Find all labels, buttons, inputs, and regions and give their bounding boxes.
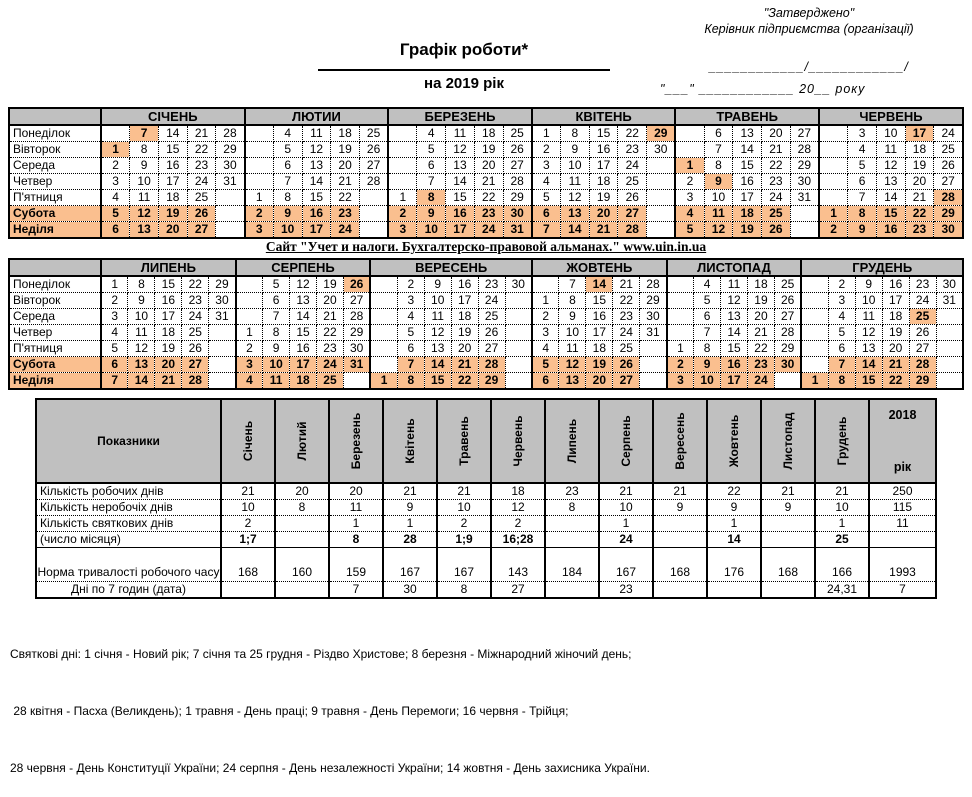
empty-day-cell	[667, 276, 694, 293]
day-cell: 12	[130, 206, 159, 222]
day-cell: 20	[905, 174, 934, 190]
day-cell: 2	[101, 158, 130, 174]
day-cell: 10	[855, 293, 882, 309]
day-cell: 25	[478, 309, 505, 325]
day-cell: 18	[586, 341, 613, 357]
day-cell: 21	[905, 190, 934, 206]
empty-day-cell	[801, 309, 828, 325]
day-cell: 28	[640, 276, 667, 293]
calendar-table-jul-dec: ЛИПЕНЬСЕРПЕНЬВЕРЕСЕНЬЖОВТЕНЬЛИСТОПАДГРУД…	[8, 258, 964, 390]
day-cell: 14	[876, 190, 905, 206]
day-cell: 26	[934, 158, 963, 174]
day-cell: 31	[216, 174, 245, 190]
day-cell: 1	[388, 190, 417, 206]
weekday-label: Субота	[9, 357, 101, 373]
day-cell: 1	[532, 125, 561, 142]
empty-day-cell	[667, 293, 694, 309]
vertical-month-header: Травень	[457, 416, 471, 465]
empty-day-cell	[359, 222, 388, 239]
day-cell: 27	[359, 158, 388, 174]
day-cell: 26	[343, 276, 370, 293]
empty-day-cell	[209, 341, 236, 357]
month-header: ЛИПЕНЬ	[101, 259, 236, 276]
day-cell: 10	[417, 222, 446, 239]
empty-day-cell	[647, 206, 676, 222]
day-cell: 6	[828, 341, 855, 357]
empty-day-cell	[801, 276, 828, 293]
day-cell: 19	[317, 276, 344, 293]
day-cell: 5	[263, 276, 290, 293]
day-cell: 5	[397, 325, 424, 341]
day-cell: 13	[721, 309, 748, 325]
day-cell: 2	[532, 309, 559, 325]
day-cell: 22	[331, 190, 360, 206]
day-cell: 22	[748, 341, 775, 357]
day-cell: 10	[561, 158, 590, 174]
day-cell: 28	[182, 373, 209, 390]
empty-day-cell	[936, 357, 963, 373]
day-cell: 15	[855, 373, 882, 390]
day-cell: 4	[417, 125, 446, 142]
indicator-label: Кількість неробочіх днів	[36, 500, 221, 516]
day-cell: 29	[478, 373, 505, 390]
indicator-value: 115	[869, 500, 936, 516]
empty-day-cell	[245, 158, 274, 174]
day-cell: 19	[882, 325, 909, 341]
day-cell: 7	[559, 276, 586, 293]
indicator-value: 1	[329, 516, 383, 532]
day-cell: 11	[130, 190, 159, 206]
day-cell: 21	[474, 174, 503, 190]
day-cell: 11	[424, 309, 451, 325]
empty-value-cell	[545, 516, 599, 532]
day-cell: 9	[561, 142, 590, 158]
vertical-month-header: Жовтень	[727, 415, 741, 467]
day-cell: 8	[130, 142, 159, 158]
indicator-value: 11	[329, 500, 383, 516]
vertical-month-header: Квітень	[403, 418, 417, 463]
day-cell: 1	[532, 293, 559, 309]
day-cell: 16	[302, 206, 331, 222]
day-cell: 18	[451, 309, 478, 325]
day-cell: 11	[302, 125, 331, 142]
day-cell: 11	[721, 276, 748, 293]
day-cell: 17	[451, 293, 478, 309]
indicator-value: 21	[815, 483, 869, 500]
day-cell: 2	[828, 276, 855, 293]
empty-day-cell	[667, 325, 694, 341]
vertical-month-header: Січень	[241, 421, 255, 461]
day-cell: 10	[694, 373, 721, 390]
day-cell: 24	[613, 325, 640, 341]
day-cell: 4	[273, 125, 302, 142]
indicator-value: 18	[491, 483, 545, 500]
day-cell: 5	[675, 222, 704, 239]
day-cell: 16	[155, 293, 182, 309]
indicator-value: 14	[707, 532, 761, 548]
day-cell: 10	[263, 357, 290, 373]
day-cell: 26	[187, 206, 216, 222]
day-cell: 28	[934, 190, 963, 206]
day-cell: 23	[905, 222, 934, 239]
empty-day-cell	[819, 174, 848, 190]
day-cell: 26	[503, 142, 532, 158]
day-cell: 1	[819, 206, 848, 222]
indicator-label: Дні по 7 годин (дата)	[36, 582, 221, 599]
weekday-label: Понеділок	[9, 276, 101, 293]
day-cell: 20	[317, 293, 344, 309]
indicator-value: 143	[491, 548, 545, 582]
day-cell: 1	[101, 276, 128, 293]
day-cell: 28	[909, 357, 936, 373]
empty-value-cell	[275, 532, 329, 548]
indicator-value: 167	[383, 548, 437, 582]
empty-day-cell	[647, 158, 676, 174]
indicator-value: 28	[383, 532, 437, 548]
day-cell: 2	[397, 276, 424, 293]
day-cell: 30	[503, 206, 532, 222]
empty-day-cell	[505, 341, 532, 357]
calendar-grid: ЛИПЕНЬСЕРПЕНЬВЕРЕСЕНЬЖОВТЕНЬЛИСТОПАДГРУД…	[8, 258, 964, 390]
day-cell: 7	[417, 174, 446, 190]
day-cell: 21	[613, 276, 640, 293]
day-cell: 20	[331, 158, 360, 174]
empty-day-cell	[640, 341, 667, 357]
day-cell: 29	[909, 373, 936, 390]
day-cell: 28	[359, 174, 388, 190]
day-cell: 9	[694, 357, 721, 373]
day-cell: 5	[417, 142, 446, 158]
day-cell: 17	[905, 125, 934, 142]
day-cell: 13	[130, 222, 159, 239]
day-cell: 23	[748, 357, 775, 373]
day-cell: 4	[236, 373, 263, 390]
day-cell: 1	[101, 142, 130, 158]
day-cell: 28	[618, 222, 647, 239]
day-cell: 13	[424, 341, 451, 357]
indicator-value: 27	[491, 582, 545, 599]
approval-role: Керівник підприємства (організації)	[648, 22, 970, 36]
empty-day-cell	[388, 142, 417, 158]
day-cell: 22	[182, 276, 209, 293]
indicator-label: (число місяця)	[36, 532, 221, 548]
day-cell: 19	[155, 341, 182, 357]
day-cell: 28	[343, 309, 370, 325]
indicators-header: Показники	[36, 399, 221, 483]
day-cell: 8	[263, 325, 290, 341]
indicator-value: 10	[815, 500, 869, 516]
weekday-label: Понеділок	[9, 125, 101, 142]
day-cell: 24	[331, 222, 360, 239]
day-cell: 30	[505, 276, 532, 293]
day-cell: 8	[559, 293, 586, 309]
day-cell: 7	[704, 142, 733, 158]
month-header: ГРУДЕНЬ	[801, 259, 963, 276]
day-cell: 27	[343, 293, 370, 309]
day-cell: 16	[158, 158, 187, 174]
day-cell: 19	[589, 190, 618, 206]
empty-day-cell	[216, 206, 245, 222]
day-cell: 11	[704, 206, 733, 222]
empty-day-cell	[236, 276, 263, 293]
day-cell: 14	[586, 276, 613, 293]
day-cell: 3	[245, 222, 274, 239]
day-cell: 18	[748, 276, 775, 293]
day-cell: 15	[155, 276, 182, 293]
day-cell: 20	[155, 357, 182, 373]
indicator-value: 2	[221, 516, 275, 532]
day-cell: 2	[388, 206, 417, 222]
empty-day-cell	[640, 357, 667, 373]
indicator-value: 21	[599, 483, 653, 500]
day-cell: 2	[236, 341, 263, 357]
day-cell: 23	[478, 276, 505, 293]
day-cell: 15	[586, 293, 613, 309]
empty-day-cell	[936, 325, 963, 341]
page-title: Графік роботи*	[318, 40, 610, 60]
day-cell: 4	[532, 174, 561, 190]
day-cell: 1	[245, 190, 274, 206]
indicator-value: 2	[437, 516, 491, 532]
month-header: ТРАВЕНЬ	[675, 108, 819, 125]
day-cell: 27	[618, 206, 647, 222]
day-cell: 22	[618, 125, 647, 142]
day-cell: 9	[263, 341, 290, 357]
day-cell: 10	[128, 309, 155, 325]
indicator-value: 10	[599, 500, 653, 516]
empty-day-cell	[790, 206, 819, 222]
day-cell: 23	[909, 276, 936, 293]
month-header: ЛИСТОПАД	[667, 259, 802, 276]
day-cell: 31	[209, 309, 236, 325]
day-cell: 17	[733, 190, 762, 206]
day-cell: 28	[216, 125, 245, 142]
holiday-note-line: 28 червня - День Конституції України; 24…	[10, 759, 960, 778]
empty-day-cell	[505, 325, 532, 341]
empty-day-cell	[216, 190, 245, 206]
day-cell: 10	[273, 222, 302, 239]
day-cell: 26	[478, 325, 505, 341]
weekday-label: Четвер	[9, 325, 101, 341]
day-cell: 9	[855, 276, 882, 293]
day-cell: 17	[158, 174, 187, 190]
empty-day-cell	[532, 276, 559, 293]
day-cell: 16	[451, 276, 478, 293]
day-cell: 31	[343, 357, 370, 373]
month-column-header: Лютий	[275, 399, 329, 483]
empty-day-cell	[819, 190, 848, 206]
day-cell: 9	[848, 222, 877, 239]
vertical-month-header: Грудень	[835, 417, 849, 466]
calendar-grid: СІЧЕНЬЛЮТИИБЕРЕЗЕНЬКВІТЕНЬТРАВЕНЬЧЕРВЕНЬ…	[8, 107, 964, 239]
day-cell: 9	[130, 158, 159, 174]
day-cell: 30	[209, 293, 236, 309]
day-cell: 5	[273, 142, 302, 158]
indicator-value: 22	[707, 483, 761, 500]
day-cell: 10	[130, 174, 159, 190]
day-cell: 15	[733, 158, 762, 174]
day-cell: 8	[828, 373, 855, 390]
day-cell: 8	[417, 190, 446, 206]
empty-day-cell	[245, 174, 274, 190]
holiday-notes: Святкові дні: 1 січня - Новий рік; 7 січ…	[10, 607, 960, 797]
signature-line: ____________/____________/	[648, 60, 970, 74]
day-cell: 6	[397, 341, 424, 357]
day-cell: 27	[909, 341, 936, 357]
month-header: ЧЕРВЕНЬ	[819, 108, 963, 125]
day-cell: 28	[478, 357, 505, 373]
indicators-table: ПоказникиСіченьЛютийБерезеньКвітеньТраве…	[35, 398, 937, 599]
work-schedule-page: { "colors": { "header_gray": "#C0C0C0", …	[0, 0, 972, 664]
day-cell: 16	[721, 357, 748, 373]
day-cell: 29	[934, 206, 963, 222]
day-cell: 28	[503, 174, 532, 190]
day-cell: 2	[532, 142, 561, 158]
day-cell: 15	[424, 373, 451, 390]
date-line: "___" ____________ 20__ року	[648, 82, 970, 96]
title-block: Графік роботи* на 2019 рік	[318, 40, 610, 92]
day-cell: 25	[503, 125, 532, 142]
month-column-header: Жовтень	[707, 399, 761, 483]
holiday-note-line: 28 квітня - Пасха (Великдень); 1 травня …	[10, 702, 960, 721]
day-cell: 13	[876, 174, 905, 190]
indicator-value: 167	[599, 548, 653, 582]
weekday-label: П'ятниця	[9, 190, 101, 206]
day-cell: 5	[848, 158, 877, 174]
empty-day-cell	[801, 357, 828, 373]
day-cell: 20	[474, 158, 503, 174]
indicator-value: 176	[707, 548, 761, 582]
day-cell: 17	[290, 357, 317, 373]
day-cell: 19	[158, 206, 187, 222]
day-cell: 23	[317, 341, 344, 357]
day-cell: 3	[532, 158, 561, 174]
day-cell: 18	[589, 174, 618, 190]
day-cell: 17	[882, 293, 909, 309]
day-cell: 23	[613, 309, 640, 325]
empty-day-cell	[790, 222, 819, 239]
weekday-label: Четвер	[9, 174, 101, 190]
day-cell: 9	[424, 276, 451, 293]
vertical-month-header: Березень	[349, 413, 363, 469]
empty-day-cell	[359, 190, 388, 206]
approval-block: "Затверджено" Керівник підприємства (орг…	[648, 6, 970, 96]
indicator-value: 24,31	[815, 582, 869, 599]
vertical-month-header: Червень	[511, 416, 525, 467]
day-cell: 30	[216, 158, 245, 174]
day-cell: 13	[561, 206, 590, 222]
day-cell: 29	[774, 341, 801, 357]
day-cell: 27	[503, 158, 532, 174]
day-cell: 5	[101, 206, 130, 222]
indicator-value: 11	[869, 516, 936, 532]
day-cell: 10	[876, 125, 905, 142]
day-cell: 4	[828, 309, 855, 325]
day-cell: 18	[331, 125, 360, 142]
indicator-value: 1	[599, 516, 653, 532]
empty-day-cell	[819, 142, 848, 158]
day-cell: 12	[559, 357, 586, 373]
day-cell: 18	[882, 309, 909, 325]
day-cell: 3	[236, 357, 263, 373]
day-cell: 23	[762, 174, 791, 190]
day-cell: 23	[618, 142, 647, 158]
day-cell: 7	[263, 309, 290, 325]
day-cell: 22	[882, 373, 909, 390]
day-cell: 30	[647, 142, 676, 158]
day-cell: 22	[317, 325, 344, 341]
day-cell: 8	[561, 125, 590, 142]
empty-day-cell	[370, 309, 397, 325]
indicator-value: 8	[329, 532, 383, 548]
day-cell: 27	[478, 341, 505, 357]
day-cell: 15	[302, 190, 331, 206]
day-cell: 1	[801, 373, 828, 390]
weekday-label: Неділя	[9, 373, 101, 390]
empty-day-cell	[505, 293, 532, 309]
day-cell: 25	[774, 276, 801, 293]
day-cell: 11	[128, 325, 155, 341]
day-cell: 6	[694, 309, 721, 325]
empty-value-cell	[653, 532, 707, 548]
day-cell: 7	[694, 325, 721, 341]
indicator-value: 20	[275, 483, 329, 500]
empty-day-cell	[236, 293, 263, 309]
day-cell: 14	[855, 357, 882, 373]
indicator-value: 9	[761, 500, 815, 516]
day-cell: 23	[331, 206, 360, 222]
indicator-value: 20	[329, 483, 383, 500]
empty-value-cell	[761, 532, 815, 548]
corner-cell	[9, 108, 101, 125]
indicator-value: 7	[329, 582, 383, 599]
day-cell: 9	[128, 293, 155, 309]
day-cell: 5	[532, 190, 561, 206]
day-cell: 13	[855, 341, 882, 357]
day-cell: 20	[586, 373, 613, 390]
title-underline	[318, 69, 610, 71]
day-cell: 8	[694, 341, 721, 357]
day-cell: 18	[474, 125, 503, 142]
day-cell: 27	[187, 222, 216, 239]
day-cell: 20	[158, 222, 187, 239]
day-cell: 21	[762, 142, 791, 158]
indicator-value: 24	[599, 532, 653, 548]
month-column-header: Листопад	[761, 399, 815, 483]
empty-day-cell	[388, 174, 417, 190]
day-cell: 5	[101, 341, 128, 357]
day-cell: 31	[503, 222, 532, 239]
day-cell: 12	[721, 293, 748, 309]
day-cell: 6	[263, 293, 290, 309]
site-banner-link[interactable]: Сайт "Учет и налоги. Бухгалтерско-правов…	[8, 239, 964, 255]
weekday-label: Середа	[9, 309, 101, 325]
day-cell: 24	[762, 190, 791, 206]
indicator-value: 166	[815, 548, 869, 582]
empty-value-cell	[275, 516, 329, 532]
day-cell: 4	[675, 206, 704, 222]
day-cell: 15	[876, 206, 905, 222]
month-header: СЕРПЕНЬ	[236, 259, 371, 276]
indicator-value: 21	[221, 483, 275, 500]
day-cell: 24	[618, 158, 647, 174]
day-cell: 7	[828, 357, 855, 373]
day-cell: 29	[343, 325, 370, 341]
indicator-value: 12	[491, 500, 545, 516]
day-cell: 20	[451, 341, 478, 357]
empty-day-cell	[647, 174, 676, 190]
month-header: ЖОВТЕНЬ	[532, 259, 667, 276]
